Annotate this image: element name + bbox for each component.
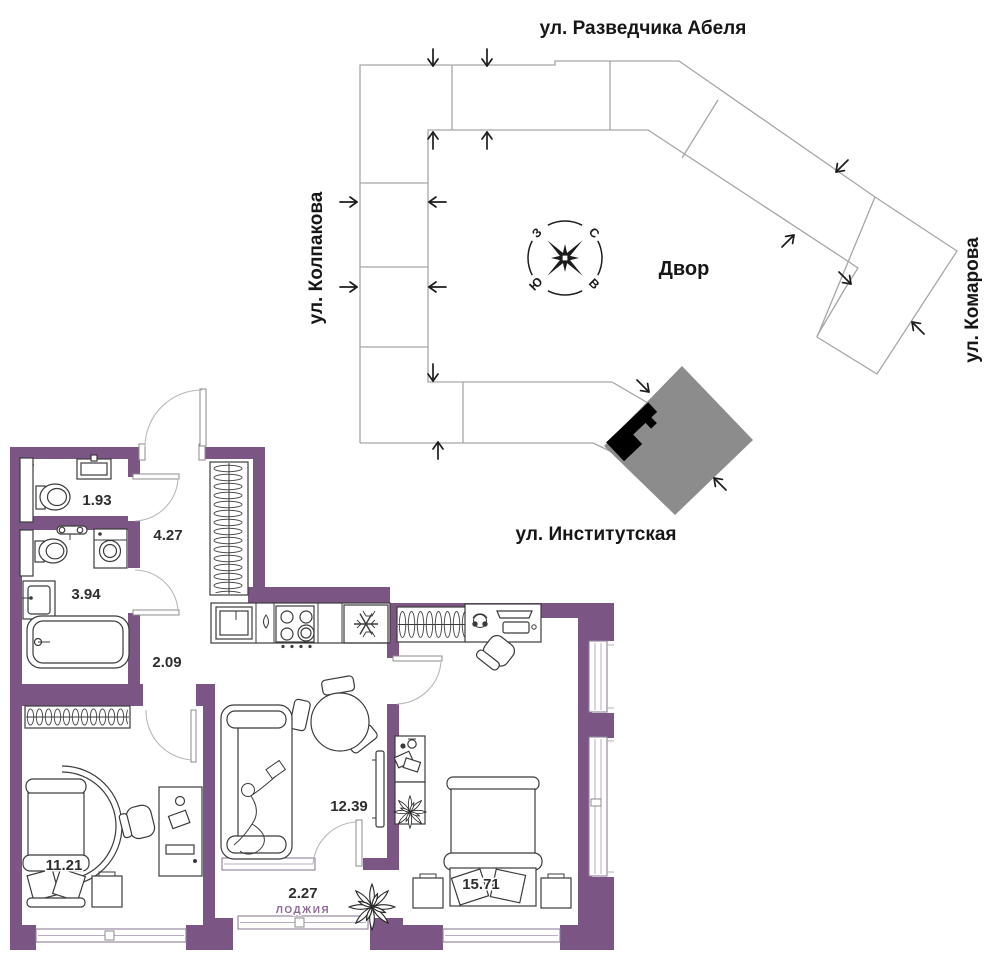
compass-east-label: В	[586, 276, 602, 292]
loggia-name-label: ЛОДЖИЯ	[276, 905, 330, 916]
kids-desk-icon	[118, 787, 202, 876]
bedroom-wardrobe-icon	[25, 706, 130, 728]
loggia-plant-icon	[349, 884, 395, 930]
floor-plan: 1.93 4.27 3.94 2.09 12.39 11.21 2.27 ЛОД…	[10, 389, 614, 950]
desk-icon	[465, 604, 541, 674]
highlighted-building	[604, 366, 753, 515]
bed-icon	[23, 766, 122, 907]
kitchen-counter	[211, 603, 390, 648]
kids-chair-icon	[118, 803, 157, 842]
washing-machine-icon	[94, 529, 127, 568]
wc-area-label: 1.93	[82, 492, 111, 509]
hallway-wardrobe-icon	[210, 462, 248, 595]
compass-icon: З С Ю В	[526, 221, 602, 295]
master-bedroom-area-label: 15.71	[462, 876, 500, 893]
bathtub-icon	[27, 616, 129, 668]
sofa-icon	[221, 705, 292, 859]
loggia-area-label: 2.27	[288, 885, 317, 902]
street-label-top: ул. Разведчика Абеля	[540, 18, 747, 39]
loggia-door	[313, 820, 362, 866]
street-label-left: ул. Колпакова	[306, 191, 327, 324]
corridor-area-label: 2.09	[152, 654, 181, 671]
master-wardrobe-icon	[397, 607, 467, 642]
compass-south-label: Ю	[526, 274, 545, 293]
bathroom-door	[133, 570, 179, 615]
kitchen-living-area-label: 12.39	[330, 798, 368, 815]
master-bedroom-door	[393, 656, 442, 704]
floorplan-page: З С Ю В ул. Разведчика Абеля ул. Колпако…	[0, 0, 1006, 960]
hallway-area-label: 4.27	[153, 527, 182, 544]
tv-icon	[372, 751, 384, 827]
courtyard-label: Двор	[659, 258, 710, 280]
bathroom-area-label: 3.94	[71, 586, 101, 603]
bedroom-area-label: 11.21	[46, 857, 83, 874]
wc-door	[133, 474, 179, 521]
street-label-bottom: ул. Институтская	[516, 524, 677, 545]
plant-icon	[394, 796, 426, 828]
shower-mixer-icon	[57, 526, 87, 540]
dining-table-icon	[289, 675, 379, 754]
entrance-door	[139, 389, 206, 460]
street-label-right: ул. Комарова	[962, 237, 983, 363]
plan-image: З С Ю В ул. Разведчика Абеля ул. Колпако…	[0, 0, 1006, 960]
shelf-icon	[394, 736, 426, 828]
bedroom-door	[146, 710, 196, 762]
site-plan: З С Ю В ул. Разведчика Абеля ул. Колпако…	[306, 18, 983, 545]
compass-north-label: С	[586, 225, 602, 241]
bathroom-sink-icon	[22, 581, 55, 619]
compass-west-label: З	[529, 225, 545, 241]
